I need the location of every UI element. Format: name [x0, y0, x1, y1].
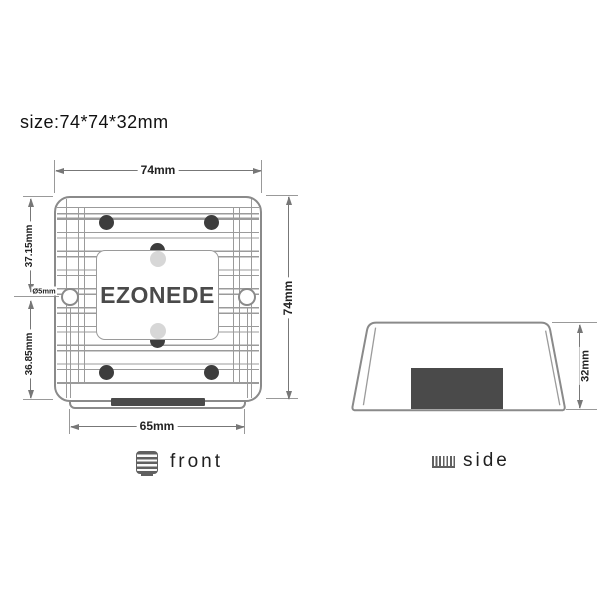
technical-drawing: size:74*74*32mm EZONEDE	[0, 0, 600, 600]
mounting-hole-right	[238, 288, 256, 306]
mounting-hole-left	[61, 288, 79, 306]
dim-label-left-lower: 36.85mm	[24, 330, 36, 379]
dim-label-left-upper: 37.15mm	[24, 222, 36, 271]
dim-label-hole-diameter: Ø5mm	[31, 287, 56, 296]
screw-dot-top-right	[204, 215, 219, 230]
ext-line-side-bottom	[566, 409, 597, 410]
screw-dot-top-left	[99, 215, 114, 230]
ext-line-side-top	[552, 322, 597, 323]
brand-label: EZONEDE	[96, 250, 219, 340]
dim-label-bottom-width: 65mm	[137, 419, 178, 433]
screw-dot-bottom-left	[99, 365, 114, 380]
front-connector-bar	[111, 398, 205, 406]
side-view-icon	[432, 456, 455, 468]
dim-label-top-width: 74mm	[138, 163, 179, 177]
dim-label-side-height: 32mm	[579, 347, 592, 385]
side-caption: side	[463, 450, 510, 472]
screw-dot-bottom-right	[204, 365, 219, 380]
side-connector-block	[411, 368, 503, 409]
side-outline-svg	[340, 312, 580, 420]
dim-label-right-height: 74mm	[281, 278, 295, 319]
